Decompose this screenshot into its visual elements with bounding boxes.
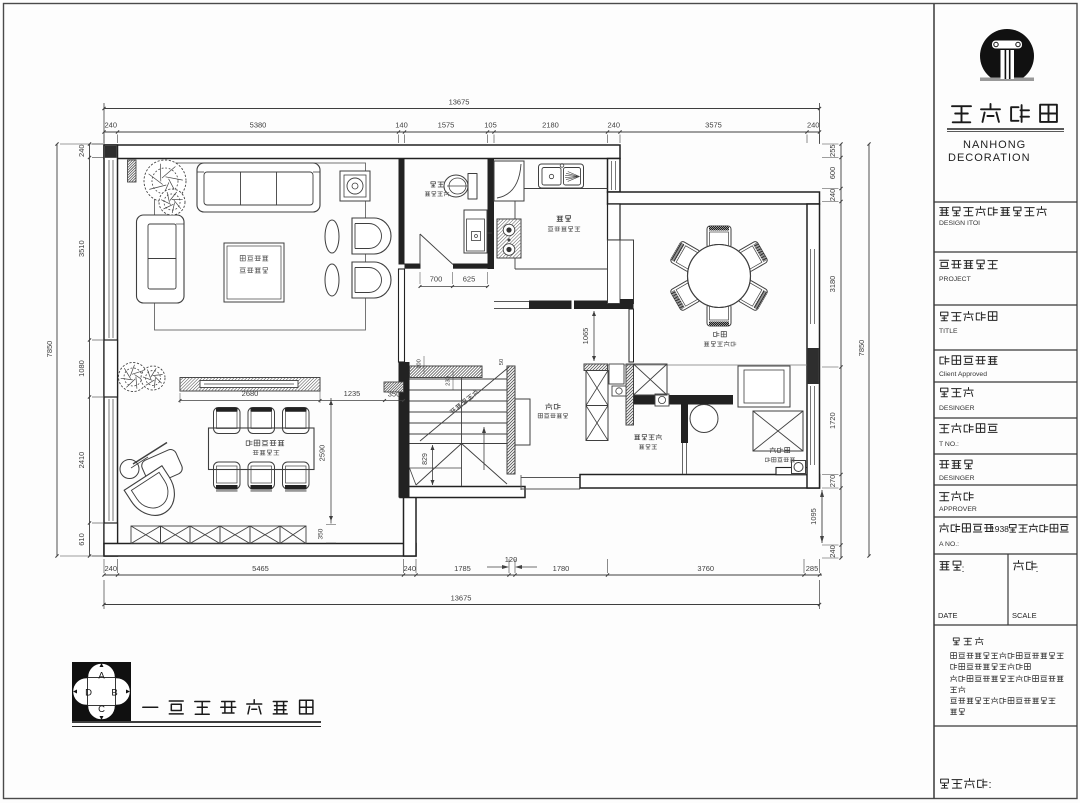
svg-text:3180: 3180 (828, 276, 837, 293)
svg-text:700: 700 (430, 275, 443, 284)
svg-text:140: 140 (395, 121, 408, 130)
svg-text:240: 240 (77, 144, 86, 157)
svg-text:7850: 7850 (857, 340, 866, 357)
svg-text:240: 240 (607, 121, 620, 130)
svg-text:DATE: DATE (938, 611, 957, 620)
svg-text:105: 105 (484, 121, 497, 130)
svg-text:DESINGER: DESINGER (939, 475, 975, 482)
svg-text:285: 285 (806, 564, 819, 573)
svg-text:610: 610 (77, 533, 86, 546)
svg-text:1235: 1235 (344, 389, 361, 398)
svg-text:DESIGN ITOI: DESIGN ITOI (939, 220, 980, 227)
svg-text:240: 240 (104, 564, 117, 573)
svg-text:240: 240 (828, 189, 837, 202)
svg-text:625: 625 (463, 275, 476, 284)
svg-text:SCALE: SCALE (1012, 611, 1037, 620)
svg-text:3510: 3510 (77, 240, 86, 257)
svg-text:DECORATION: DECORATION (948, 152, 1031, 164)
svg-text:2590: 2590 (318, 445, 327, 462)
svg-text:13675: 13675 (451, 594, 472, 603)
svg-text:600: 600 (828, 167, 837, 180)
svg-text:230: 230 (446, 376, 452, 386)
svg-text:2680: 2680 (242, 389, 259, 398)
svg-text:1065: 1065 (581, 328, 590, 345)
svg-text:240: 240 (807, 121, 820, 130)
svg-text:C: C (98, 704, 105, 715)
svg-text:A: A (98, 671, 105, 682)
svg-text:5380: 5380 (250, 121, 267, 130)
svg-text:T NO.:: T NO.: (939, 441, 959, 448)
svg-text::: : (988, 779, 991, 791)
svg-text:270: 270 (828, 475, 837, 488)
svg-text:7850: 7850 (45, 341, 54, 358)
svg-text:D: D (85, 688, 92, 699)
svg-text:240: 240 (104, 121, 117, 130)
svg-text:1080: 1080 (77, 360, 86, 377)
svg-text::: : (1036, 564, 1039, 575)
svg-text:350: 350 (388, 390, 401, 399)
svg-text:DESINGER: DESINGER (939, 405, 975, 412)
svg-text:13675: 13675 (449, 98, 470, 107)
svg-text:B: B (111, 688, 117, 699)
svg-text:3760: 3760 (697, 564, 714, 573)
svg-text:829: 829 (422, 453, 429, 465)
svg-text:255: 255 (828, 144, 837, 157)
svg-text::: : (962, 564, 965, 575)
svg-text:APPROVER: APPROVER (939, 506, 977, 513)
svg-text:120: 120 (505, 555, 518, 564)
svg-text:Client Approved: Client Approved (939, 371, 987, 378)
svg-text:1780: 1780 (553, 564, 570, 573)
svg-text:240: 240 (828, 545, 837, 558)
svg-text:3575: 3575 (705, 121, 722, 130)
svg-text:240: 240 (403, 564, 416, 573)
svg-text:1785: 1785 (454, 564, 471, 573)
svg-text:50: 50 (499, 359, 505, 365)
svg-text:350: 350 (318, 528, 325, 539)
svg-text:2180: 2180 (542, 121, 559, 130)
svg-text:100: 100 (417, 359, 423, 369)
svg-text:TITLE: TITLE (939, 328, 958, 335)
svg-text:1720: 1720 (828, 412, 837, 429)
svg-text:PROJECT: PROJECT (939, 276, 971, 283)
svg-text:1575: 1575 (438, 121, 455, 130)
svg-text:1095: 1095 (809, 508, 818, 525)
svg-text:A NO.:: A NO.: (939, 541, 959, 548)
svg-text:2410: 2410 (77, 452, 86, 469)
svg-text:NANHONG: NANHONG (963, 139, 1026, 151)
svg-text:5465: 5465 (252, 564, 269, 573)
svg-text:1938: 1938 (990, 524, 1009, 534)
